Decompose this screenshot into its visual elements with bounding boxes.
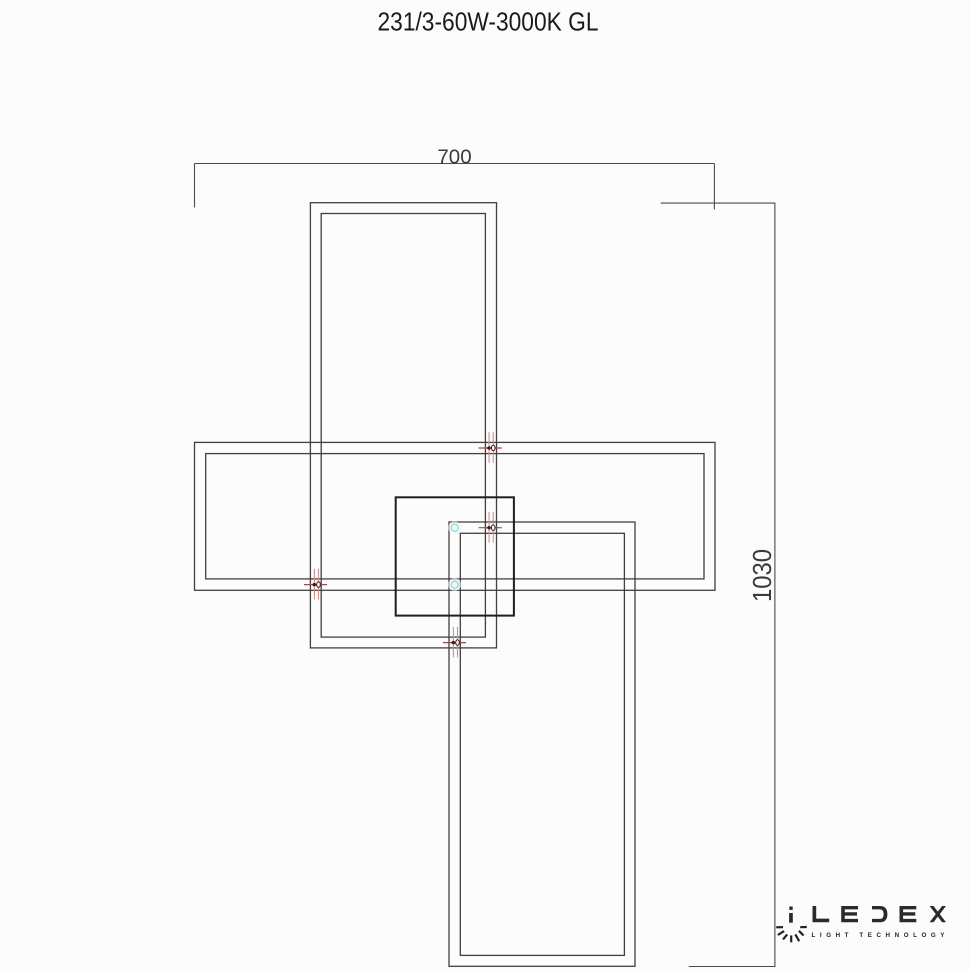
svg-text:1030: 1030: [747, 549, 777, 602]
svg-text:LIGHT TECHNOLOGY: LIGHT TECHNOLOGY: [812, 932, 950, 939]
svg-text:700: 700: [437, 145, 471, 168]
svg-text:231/3-60W-3000K GL: 231/3-60W-3000K GL: [378, 7, 599, 37]
